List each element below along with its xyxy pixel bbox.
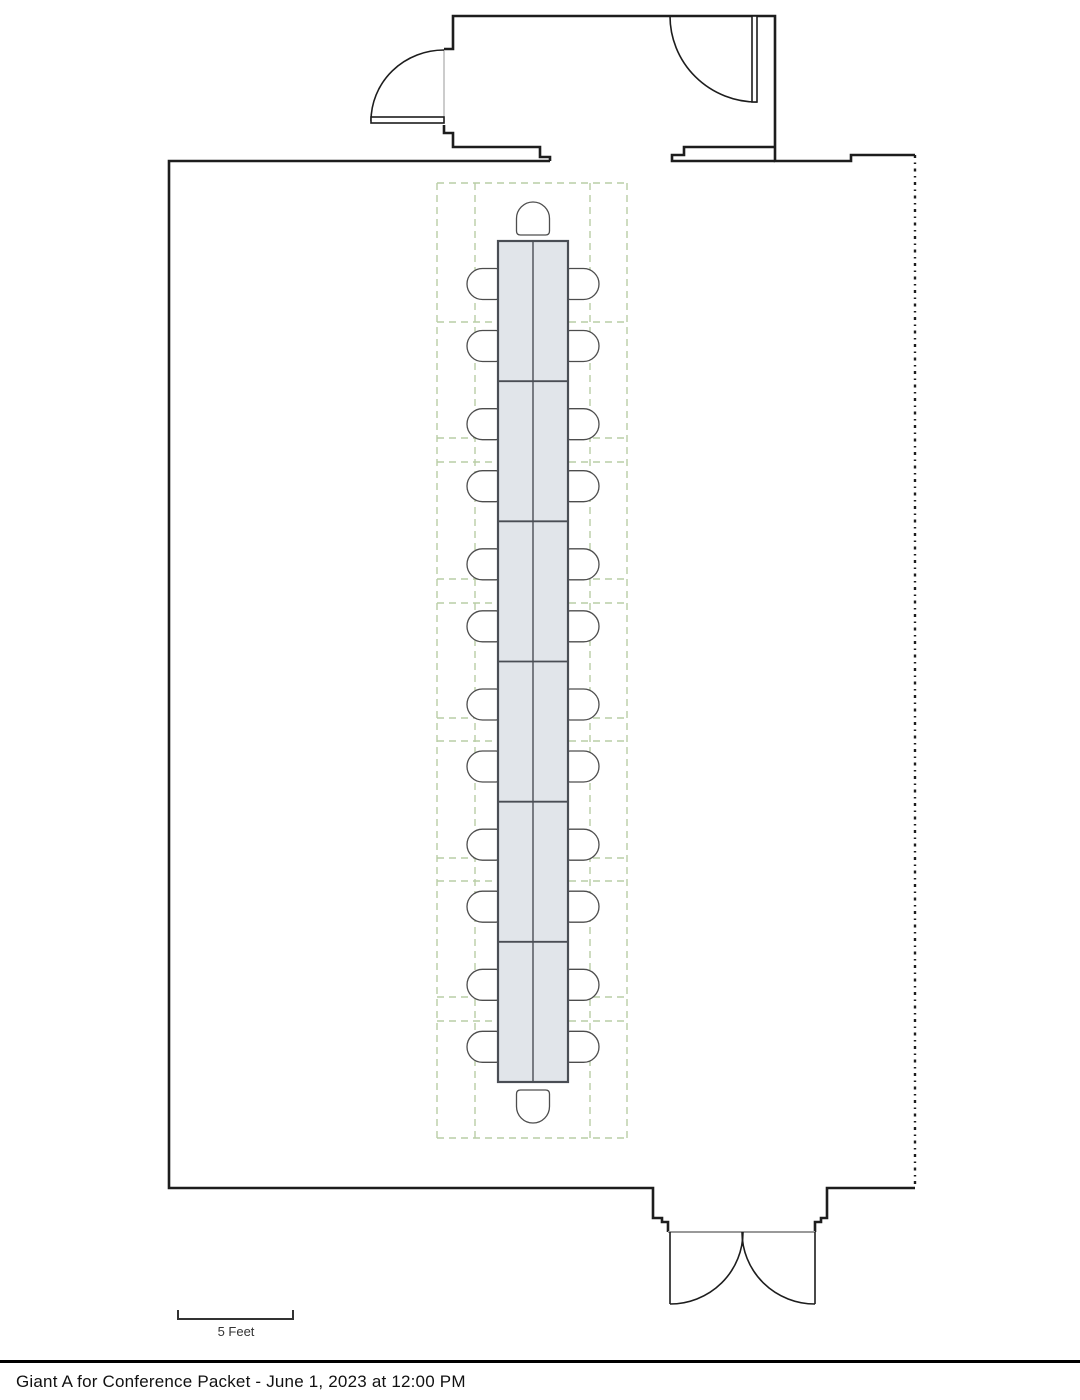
chair-right xyxy=(566,269,599,300)
chair-right xyxy=(566,549,599,580)
scale-bar: 5 Feet xyxy=(178,1310,293,1339)
scale-bar-label: 5 Feet xyxy=(218,1324,255,1339)
door-swing-arc xyxy=(670,16,757,102)
chair-left xyxy=(467,471,500,502)
chair-right xyxy=(566,891,599,922)
vestibule-door-left xyxy=(371,50,444,123)
chair-right xyxy=(566,471,599,502)
caption: Giant A for Conference Packet - June 1, … xyxy=(16,1372,466,1392)
door-swing-arc xyxy=(742,1232,815,1304)
chair-right xyxy=(566,409,599,440)
chair-left xyxy=(467,1031,500,1062)
chair-right xyxy=(566,611,599,642)
chair-right xyxy=(566,689,599,720)
chair-left xyxy=(467,751,500,782)
floor-plan: 5 Feet xyxy=(0,0,1080,1397)
chair-foot xyxy=(517,1090,550,1123)
vestibule-door-right xyxy=(670,16,757,102)
scale-bar-bracket xyxy=(178,1310,293,1319)
chair-left xyxy=(467,689,500,720)
chair-left xyxy=(467,549,500,580)
chair-right xyxy=(566,829,599,860)
chair-left xyxy=(467,269,500,300)
caption-bar: Giant A for Conference Packet - June 1, … xyxy=(0,1360,1080,1400)
chair-right xyxy=(566,751,599,782)
chair-left xyxy=(467,331,500,362)
door-leaf xyxy=(752,16,757,102)
chair-right xyxy=(566,969,599,1000)
door-swing-arc xyxy=(670,1232,743,1304)
chair-head xyxy=(517,202,550,235)
door-swing-arc xyxy=(371,50,444,121)
conference-table xyxy=(498,241,568,1082)
wall-bottom-right xyxy=(815,1188,915,1232)
floor-plan-svg: 5 Feet xyxy=(0,0,1080,1397)
wall-vestibule-left-stub xyxy=(444,125,550,161)
chair-left xyxy=(467,969,500,1000)
chair-right xyxy=(566,331,599,362)
chair-left xyxy=(467,891,500,922)
chair-left xyxy=(467,829,500,860)
chair-left xyxy=(467,611,500,642)
chair-left xyxy=(467,409,500,440)
door-leaf xyxy=(371,117,444,123)
wall-top-right-vestibule xyxy=(444,16,915,161)
double-door-bottom xyxy=(668,1232,815,1304)
chair-right xyxy=(566,1031,599,1062)
wall-vestibule-right-stub xyxy=(672,147,775,161)
